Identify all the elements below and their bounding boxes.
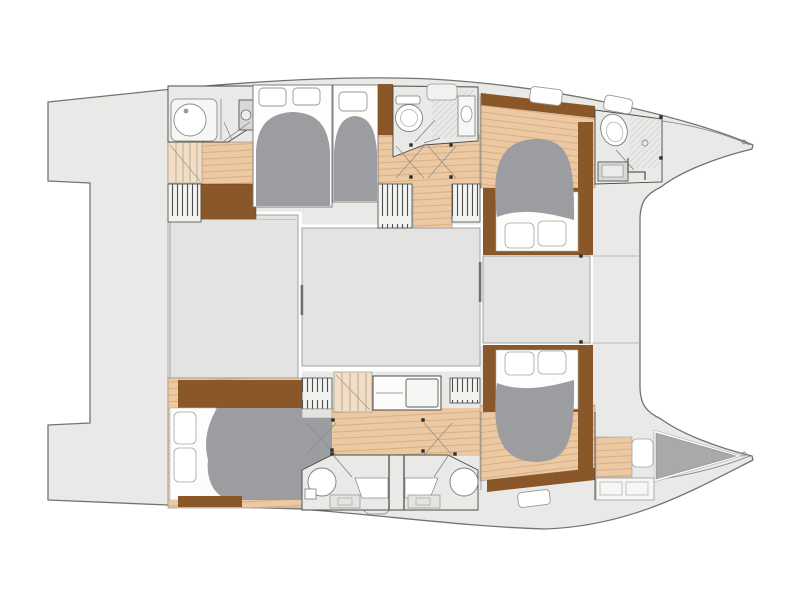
hull-window: [339, 92, 367, 111]
port-cabinet: [201, 184, 256, 219]
washbasin: [450, 468, 478, 496]
footboard: [178, 496, 242, 507]
bed-frame-side: [578, 122, 593, 188]
hull-window: [259, 88, 286, 106]
port-mid-guest-cabin: [333, 85, 378, 202]
bed-duvet: [256, 112, 330, 206]
toilet-bowl: [396, 105, 423, 132]
starboard-hanging-locker-aft: [302, 378, 332, 409]
starboard-companionway-stairs: [334, 372, 372, 412]
port-hanging-locker-fwd: [452, 184, 480, 222]
bed-frame-side: [578, 412, 593, 472]
pillow: [505, 352, 534, 375]
shower-drain: [184, 109, 189, 114]
sink-bowl: [241, 110, 251, 120]
port-hanging-locker-mid: [378, 184, 412, 228]
shower-zone: [630, 118, 660, 168]
toilet-tank: [305, 489, 316, 499]
catamaran-floorplan: [0, 0, 800, 600]
pillow: [505, 223, 534, 248]
toilet-tank: [396, 96, 420, 104]
pillow: [174, 412, 196, 444]
port-hanging-locker-aft: [168, 184, 201, 222]
headboard: [178, 380, 303, 408]
port-companionway-stairs: [168, 142, 202, 183]
hull-window: [529, 86, 563, 106]
starboard-nav-desk: [373, 376, 441, 410]
aft-cockpit: [170, 215, 298, 378]
floorplan-canvas: [0, 0, 800, 600]
bow-wood-floor: [596, 437, 632, 477]
pillow: [538, 221, 566, 246]
locker-shelf: [302, 409, 332, 418]
port-aft-head: [168, 86, 253, 142]
starboard-hanging-locker-fwd: [450, 378, 480, 403]
storage-locker: [596, 478, 654, 500]
saloon: [302, 228, 480, 366]
pillow: [174, 448, 196, 482]
pillow: [632, 439, 653, 467]
vanity: [330, 495, 360, 508]
bed-duvet: [334, 116, 377, 201]
hull-window: [293, 88, 320, 105]
bed-duvet: [495, 380, 574, 462]
bed-duvet: [495, 139, 574, 220]
vanity: [408, 495, 440, 508]
port-aft-guest-cabin: [253, 85, 332, 207]
pillow: [538, 351, 566, 374]
shower-basin: [174, 104, 206, 136]
port-forward-head: [595, 110, 662, 184]
saloon-door-mark-right: [479, 262, 482, 302]
forward-cockpit: [483, 256, 590, 343]
port-mid-bulkhead-cabinet: [378, 84, 393, 135]
saloon-door-mark-left: [301, 285, 304, 315]
starboard-heads-block: [302, 455, 478, 514]
deck-hatch: [427, 84, 457, 100]
